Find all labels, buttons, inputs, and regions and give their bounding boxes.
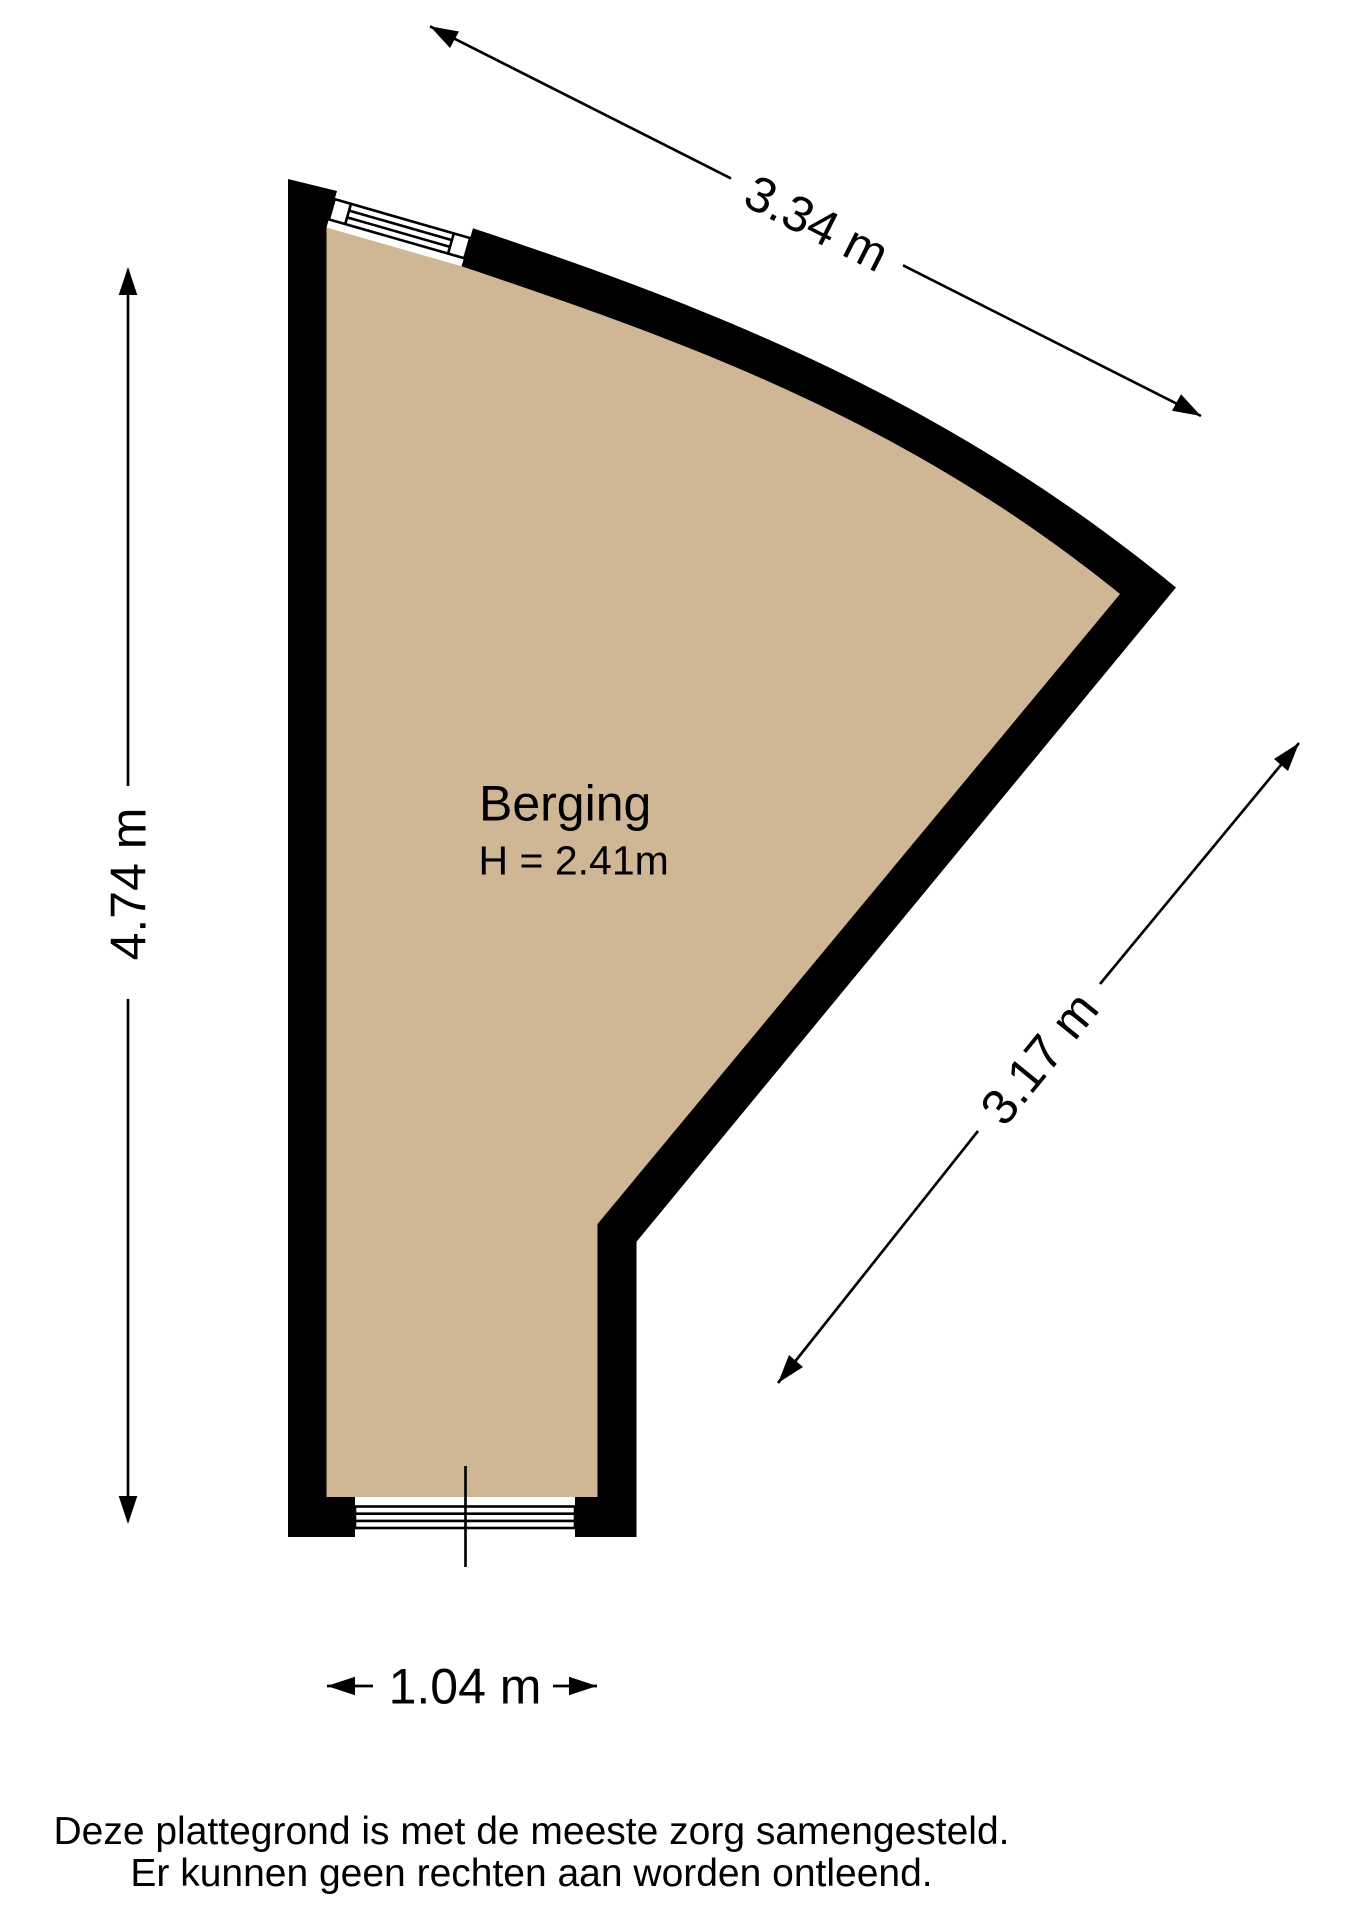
svg-text:Berging: Berging [479, 776, 651, 832]
svg-text:Er kunnen geen rechten aan wor: Er kunnen geen rechten aan worden ontlee… [130, 1852, 932, 1895]
svg-text:1.04 m: 1.04 m [389, 1659, 542, 1715]
svg-text:H = 2.41m: H = 2.41m [479, 837, 669, 883]
svg-text:Deze plattegrond is met de mee: Deze plattegrond is met de meeste zorg s… [53, 1810, 1009, 1853]
svg-text:4.74 m: 4.74 m [101, 808, 157, 961]
